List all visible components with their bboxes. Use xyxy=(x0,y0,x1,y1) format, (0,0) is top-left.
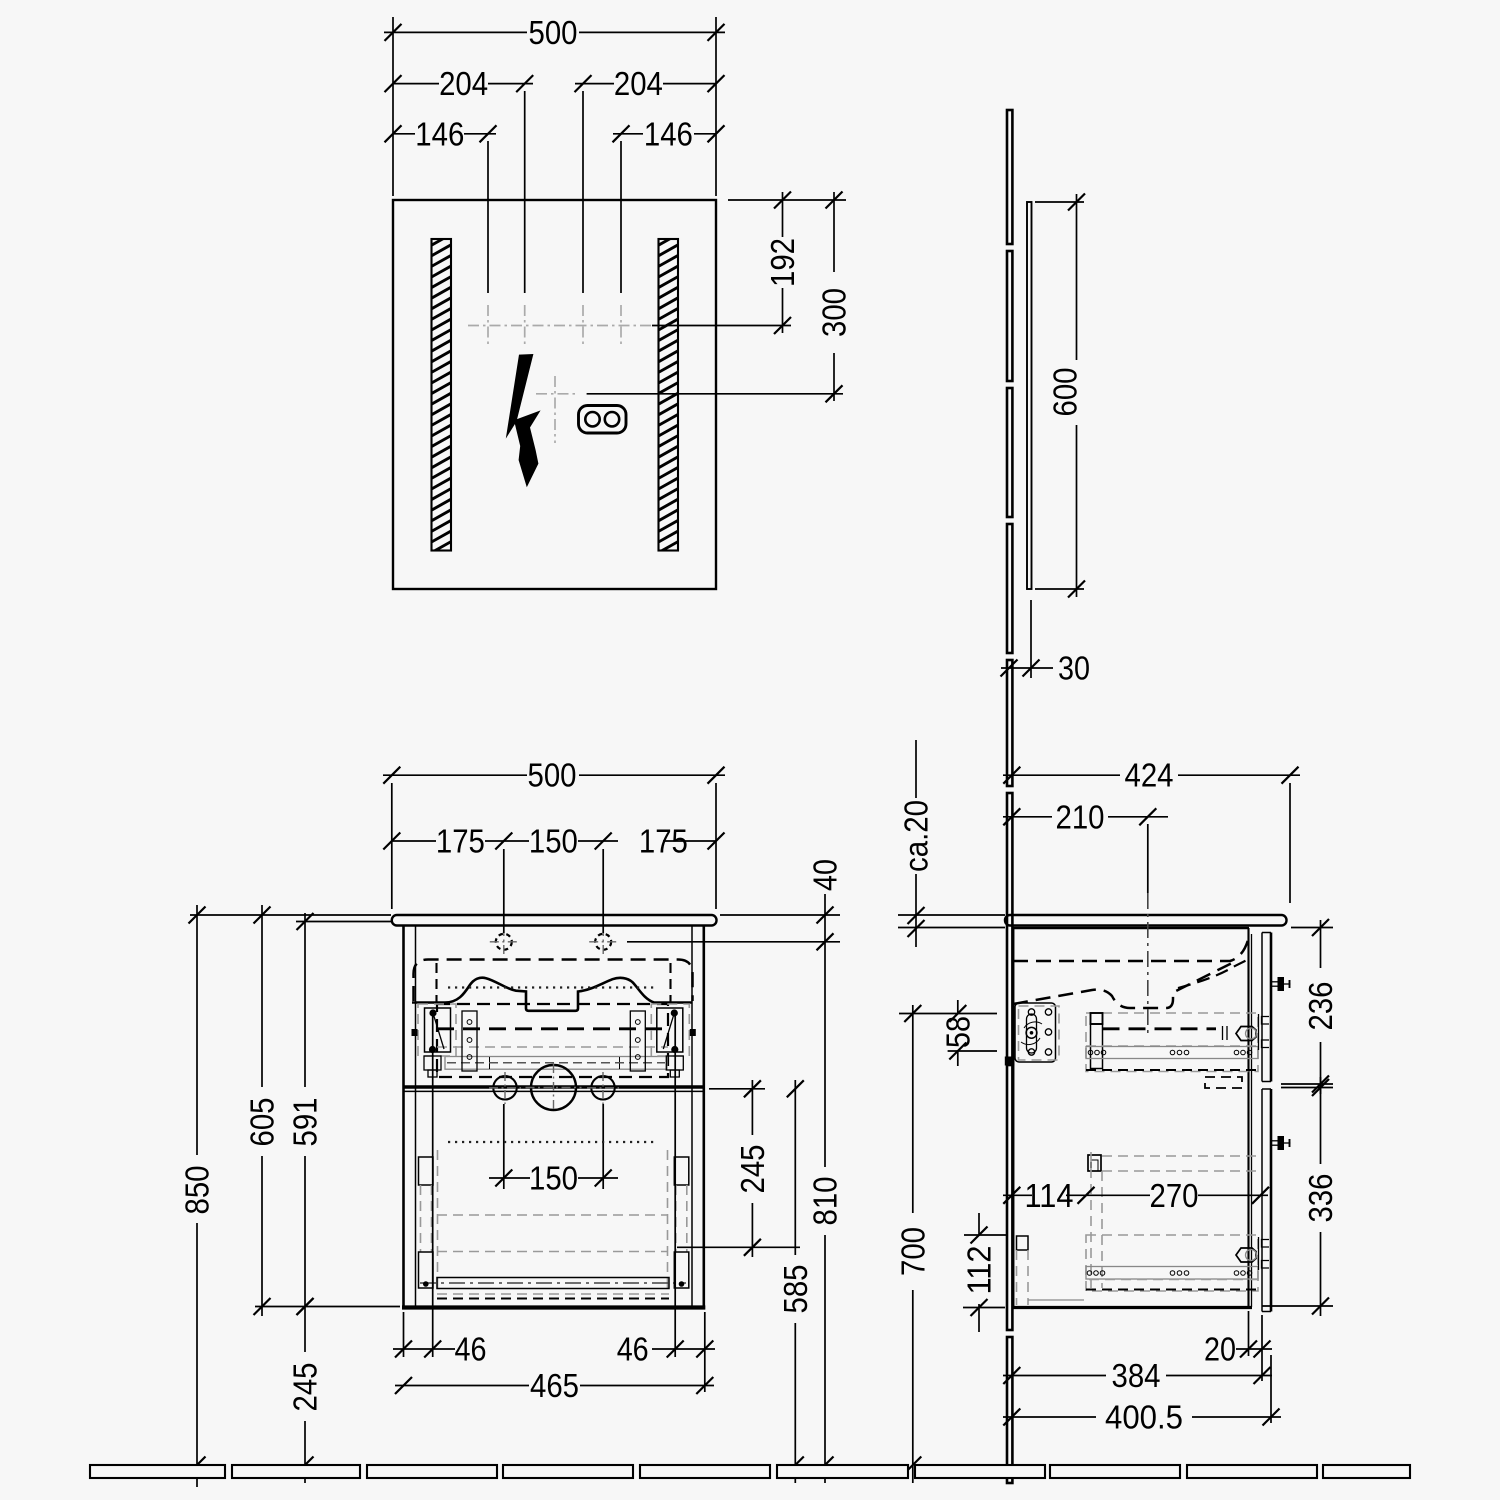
svg-text:46: 46 xyxy=(617,1331,649,1368)
svg-text:146: 146 xyxy=(415,115,464,152)
svg-text:384: 384 xyxy=(1112,1357,1161,1394)
svg-text:112: 112 xyxy=(961,1246,998,1295)
svg-text:58: 58 xyxy=(939,1016,976,1048)
svg-text:ca.20: ca.20 xyxy=(898,800,935,872)
svg-text:465: 465 xyxy=(530,1367,579,1404)
svg-text:150: 150 xyxy=(529,823,578,860)
svg-text:591: 591 xyxy=(287,1098,324,1147)
svg-text:605: 605 xyxy=(244,1098,281,1147)
svg-text:500: 500 xyxy=(528,757,577,794)
svg-text:30: 30 xyxy=(1058,650,1090,687)
svg-text:175: 175 xyxy=(436,823,485,860)
svg-text:146: 146 xyxy=(644,115,693,152)
svg-text:850: 850 xyxy=(179,1166,216,1215)
svg-text:114: 114 xyxy=(1025,1177,1074,1214)
svg-text:245: 245 xyxy=(287,1363,324,1412)
svg-text:400.5: 400.5 xyxy=(1105,1399,1183,1436)
svg-text:40: 40 xyxy=(807,859,844,891)
svg-text:500: 500 xyxy=(529,14,578,51)
svg-text:236: 236 xyxy=(1302,982,1339,1031)
svg-text:204: 204 xyxy=(614,65,663,102)
svg-text:20: 20 xyxy=(1204,1331,1236,1368)
svg-text:46: 46 xyxy=(455,1331,487,1368)
svg-text:245: 245 xyxy=(734,1145,771,1194)
svg-text:810: 810 xyxy=(807,1177,844,1226)
svg-text:336: 336 xyxy=(1302,1174,1339,1223)
svg-text:192: 192 xyxy=(764,238,801,287)
svg-text:150: 150 xyxy=(529,1160,578,1197)
svg-text:204: 204 xyxy=(439,65,488,102)
svg-text:270: 270 xyxy=(1150,1177,1199,1214)
svg-text:700: 700 xyxy=(894,1227,931,1276)
svg-text:585: 585 xyxy=(777,1265,814,1314)
svg-text:300: 300 xyxy=(816,288,853,337)
svg-text:175: 175 xyxy=(639,823,688,860)
svg-text:210: 210 xyxy=(1056,798,1105,835)
svg-text:600: 600 xyxy=(1047,368,1084,417)
svg-text:424: 424 xyxy=(1125,757,1174,794)
